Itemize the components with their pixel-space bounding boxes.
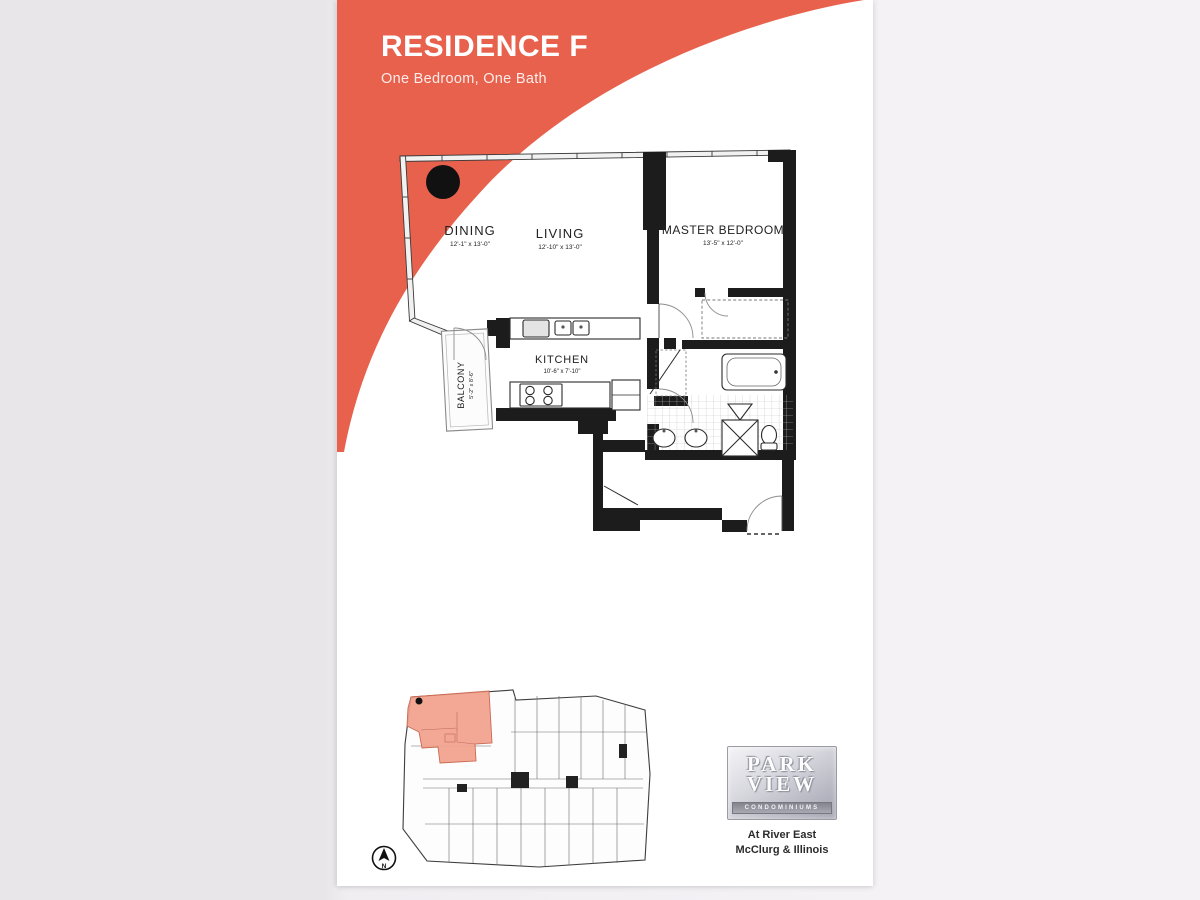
toilet [762,426,777,445]
logo-condominiums-bar: CONDOMINIUMS [732,802,832,814]
compass-icon: N [373,847,396,871]
master-bedroom-label: MASTER BEDROOM [662,223,784,237]
master-bedroom-dims: 13'-5" x 12'-0" [703,240,744,247]
parkview-logo: PARK VIEW CONDOMINIUMS [727,746,837,820]
entry-door-arc [747,496,782,531]
balcony [441,329,492,431]
balcony-dims: 5'-2" x 8'-6" [469,371,475,399]
master-door-arc [659,304,693,338]
balcony-label: BALCONY [456,361,466,408]
flyer-page: RESIDENCE F One Bedroom, One Bath [337,0,873,886]
page-subtitle: One Bedroom, One Bath [381,71,588,87]
logo-address: At River East McClurg & Illinois [727,828,837,859]
address-line-2: McClurg & Illinois [727,843,837,858]
key-plan: N [361,684,661,880]
brand-block: PARK VIEW CONDOMINIUMS At River East McC… [727,746,837,859]
kitchen-label: KITCHEN [535,354,589,366]
living-label: LIVING [536,226,585,241]
toilet-tank [761,443,777,450]
title-block: RESIDENCE F One Bedroom, One Bath [381,30,588,87]
address-line-1: At River East [727,828,837,843]
column-dot [426,165,460,199]
living-dims: 12'-10" x 13'-0" [538,244,582,251]
unit-column-dot [416,698,423,705]
dining-label: DINING [444,223,496,238]
dining-dims: 12'-1" x 13'-0" [450,241,491,248]
closet-door-arc [705,293,728,316]
screenshot-root: { "page": { "title": "RESIDENCE F", "sub… [0,0,1200,900]
entry-closet-door [604,486,638,505]
logo-view: VIEW [747,775,817,794]
page-title: RESIDENCE F [381,30,588,64]
compass-north-label: N [382,863,387,870]
oven [523,320,549,337]
floor-plan: DINING 12'-1" x 13'-0" LIVING 12'-10" x … [392,142,812,557]
kitchen-dims: 10'-6" x 7'-10" [544,369,581,375]
walls [487,150,796,532]
walkin-closet [702,300,788,338]
logo-words: PARK VIEW [747,747,817,802]
